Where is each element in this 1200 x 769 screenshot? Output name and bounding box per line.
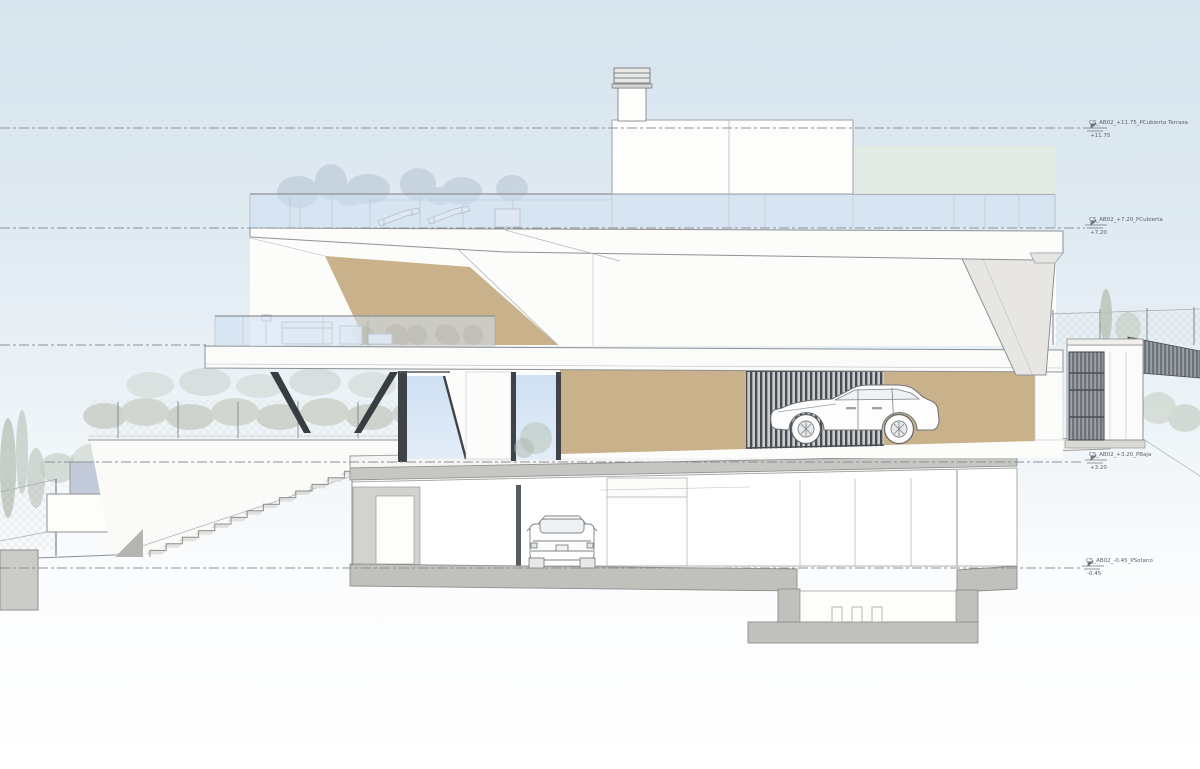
architectural-section-drawing: CS_AB02_+11.75_PCubierta Terraza +11.75 … [0, 0, 1200, 769]
cypress-tree [1100, 289, 1112, 343]
section-canvas: CS_AB02_+11.75_PCubierta Terraza +11.75 … [0, 0, 1200, 769]
entry-window-rect [511, 372, 561, 461]
level-value: -0.45 [1087, 571, 1102, 577]
sedan-car [527, 516, 597, 568]
level-label: CS_AB02_+7.20_PCubierta [1089, 217, 1163, 223]
chimney [612, 68, 652, 121]
boundary-wall-section [0, 550, 38, 610]
louvered-gate-door [1069, 352, 1104, 440]
garden-hedge-and-fence [83, 368, 434, 440]
hills-behind-railing [853, 146, 1056, 194]
roof-glass-railing [250, 194, 1055, 228]
terrace-glass-railing [215, 312, 495, 346]
level-label: CS_AB02_-0.45_PSotano [1086, 558, 1154, 564]
level-value: +11.75 [1090, 133, 1111, 139]
level-value: +7.20 [1090, 230, 1107, 236]
level-value: +3.20 [1090, 465, 1107, 471]
level-label: CS_AB02_+11.75_PCubierta Terraza [1089, 120, 1188, 126]
level-label: CS_AB02_+3.20_PBaja [1089, 452, 1151, 458]
first-floor-slab [205, 346, 1063, 372]
sunken-plant-room [748, 589, 978, 643]
basement-column [516, 485, 521, 566]
basement-door [376, 496, 414, 564]
entrance-gate [1065, 339, 1145, 448]
